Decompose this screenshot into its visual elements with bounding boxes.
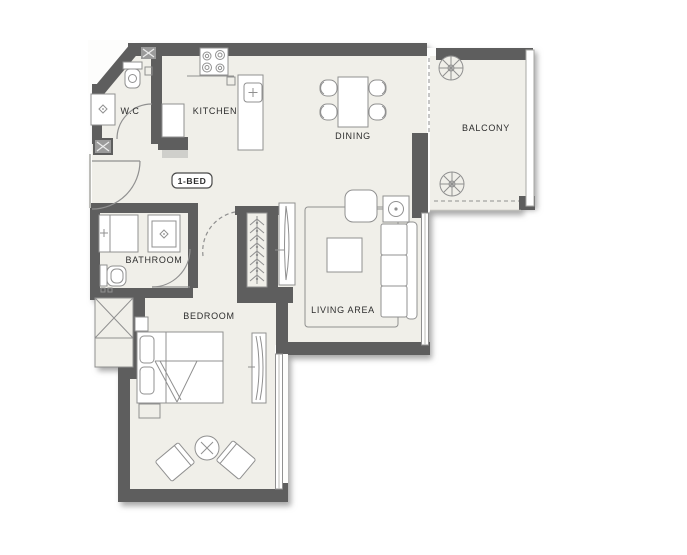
entry-closet — [95, 298, 133, 367]
kitchen-dining-floor — [157, 50, 427, 150]
kitchen-left-counter — [162, 104, 184, 137]
dining-table — [338, 77, 368, 127]
dining-chair — [320, 80, 337, 96]
unit-type-badge: 1-BED — [172, 173, 212, 188]
plant-icon — [439, 56, 463, 80]
living-window — [422, 213, 429, 345]
kitchen-cabinet-lower — [162, 150, 188, 158]
sofa — [381, 222, 417, 319]
label-living: LIVING AREA — [311, 305, 375, 315]
floorplan-page: W.C KITCHEN DINING BALCONY BATHROOM BEDR… — [0, 0, 687, 555]
unit-type-label: 1-BED — [178, 176, 207, 186]
dining-chair — [369, 104, 386, 120]
label-kitchen: KITCHEN — [193, 106, 237, 116]
dining-chair — [320, 104, 337, 120]
wardrobe — [247, 213, 267, 287]
lounge-chair — [345, 190, 377, 222]
shaft-icon — [95, 140, 111, 153]
hob-icon — [200, 48, 228, 75]
fridge-unit — [238, 75, 263, 150]
label-wc: W.C — [120, 106, 139, 116]
wc-sink — [91, 94, 115, 125]
label-bedroom: BEDROOM — [183, 311, 234, 321]
vent-icon — [141, 47, 156, 59]
bed — [137, 332, 223, 403]
label-balcony: BALCONY — [462, 123, 510, 133]
bedroom-window — [276, 354, 283, 489]
bathroom-sink — [148, 215, 180, 252]
side-table-lamp — [383, 196, 409, 222]
coffee-table — [327, 238, 362, 272]
nightstand — [135, 317, 148, 331]
plant-icon — [440, 172, 464, 196]
balcony-parapet — [526, 50, 534, 206]
floorplan-canvas: W.C KITCHEN DINING BALCONY BATHROOM BEDR… — [0, 0, 687, 555]
dining-chair — [369, 80, 386, 96]
label-dining: DINING — [335, 131, 371, 141]
shower — [99, 215, 138, 252]
label-bathroom: BATHROOM — [126, 255, 183, 265]
